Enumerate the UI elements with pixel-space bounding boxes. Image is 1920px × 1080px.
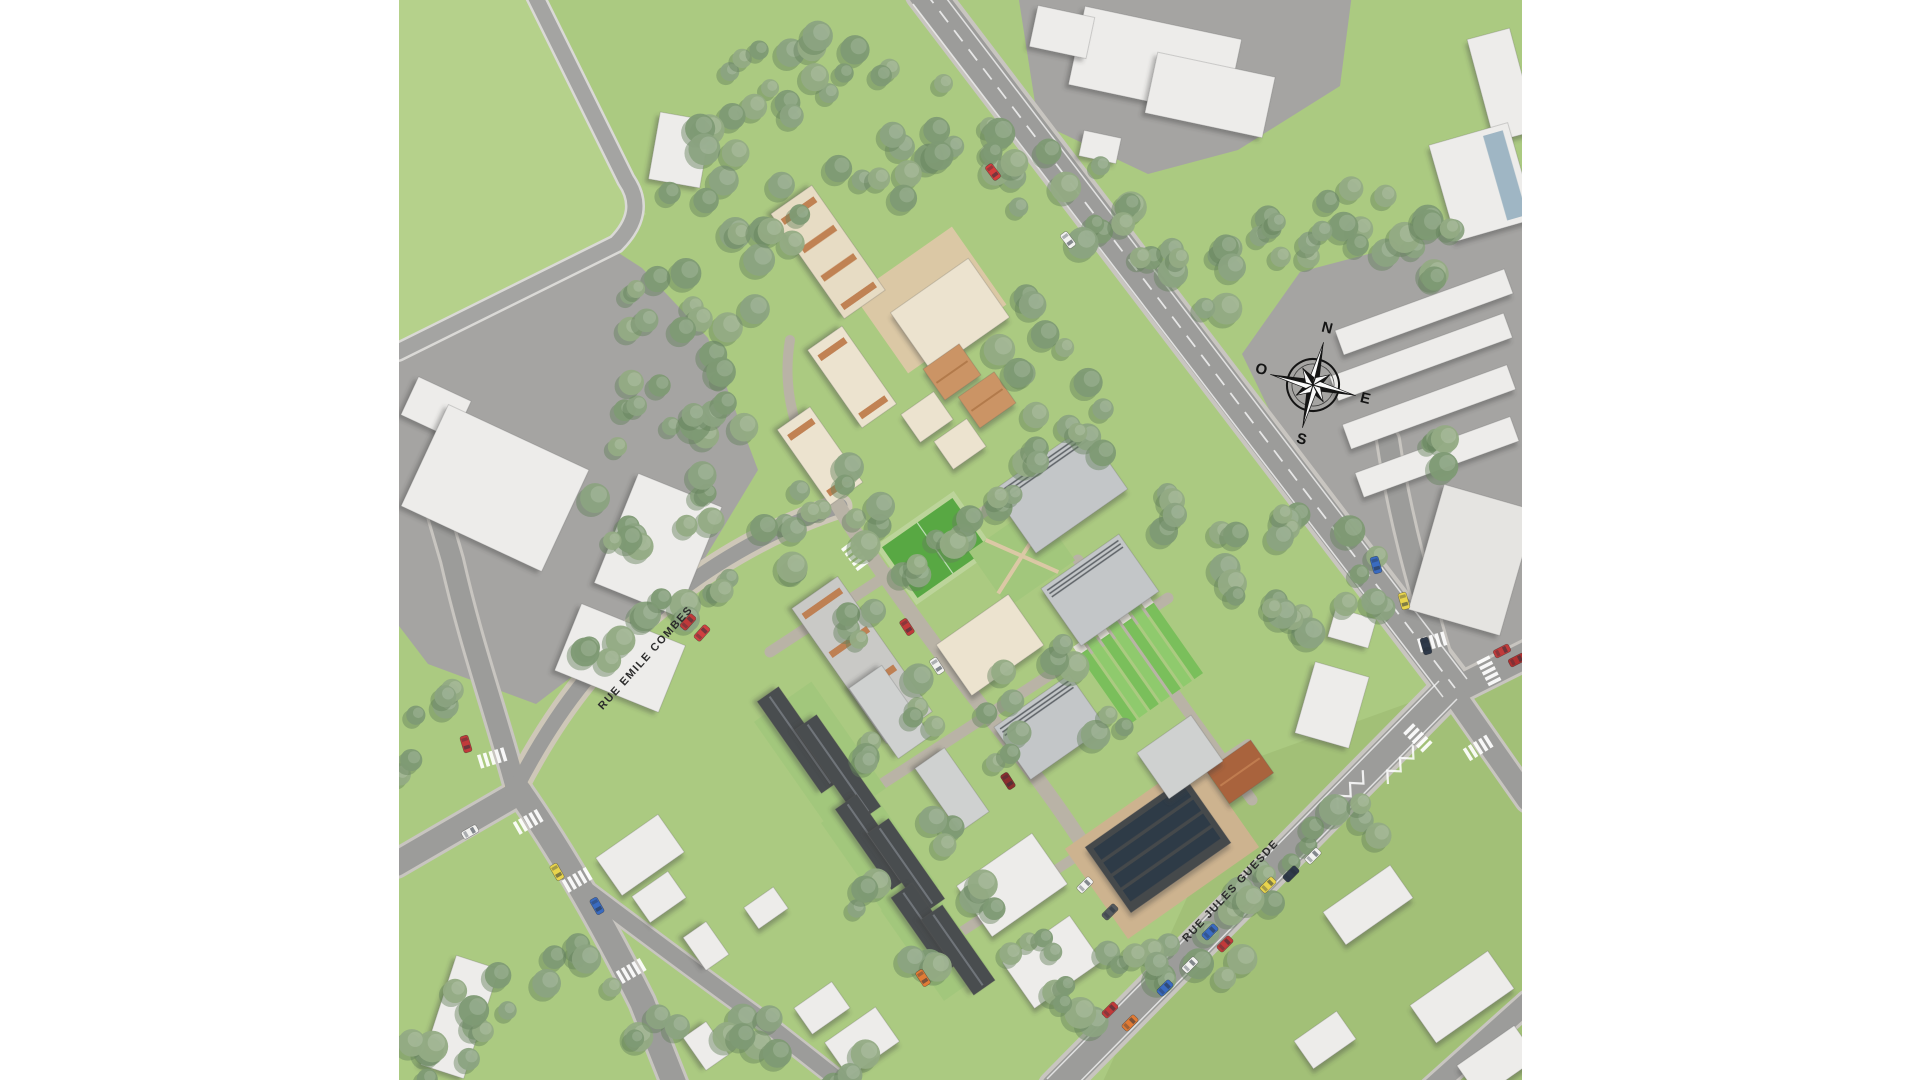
plan-content: NESORUE EMILE COMBESRUE JULES GUESDE	[377, 0, 1537, 1080]
masterplan-aerial-rendering: NESORUE EMILE COMBESRUE JULES GUESDE	[0, 0, 1920, 1080]
site-plan-page: NESORUE EMILE COMBESRUE JULES GUESDE	[0, 0, 1920, 1080]
